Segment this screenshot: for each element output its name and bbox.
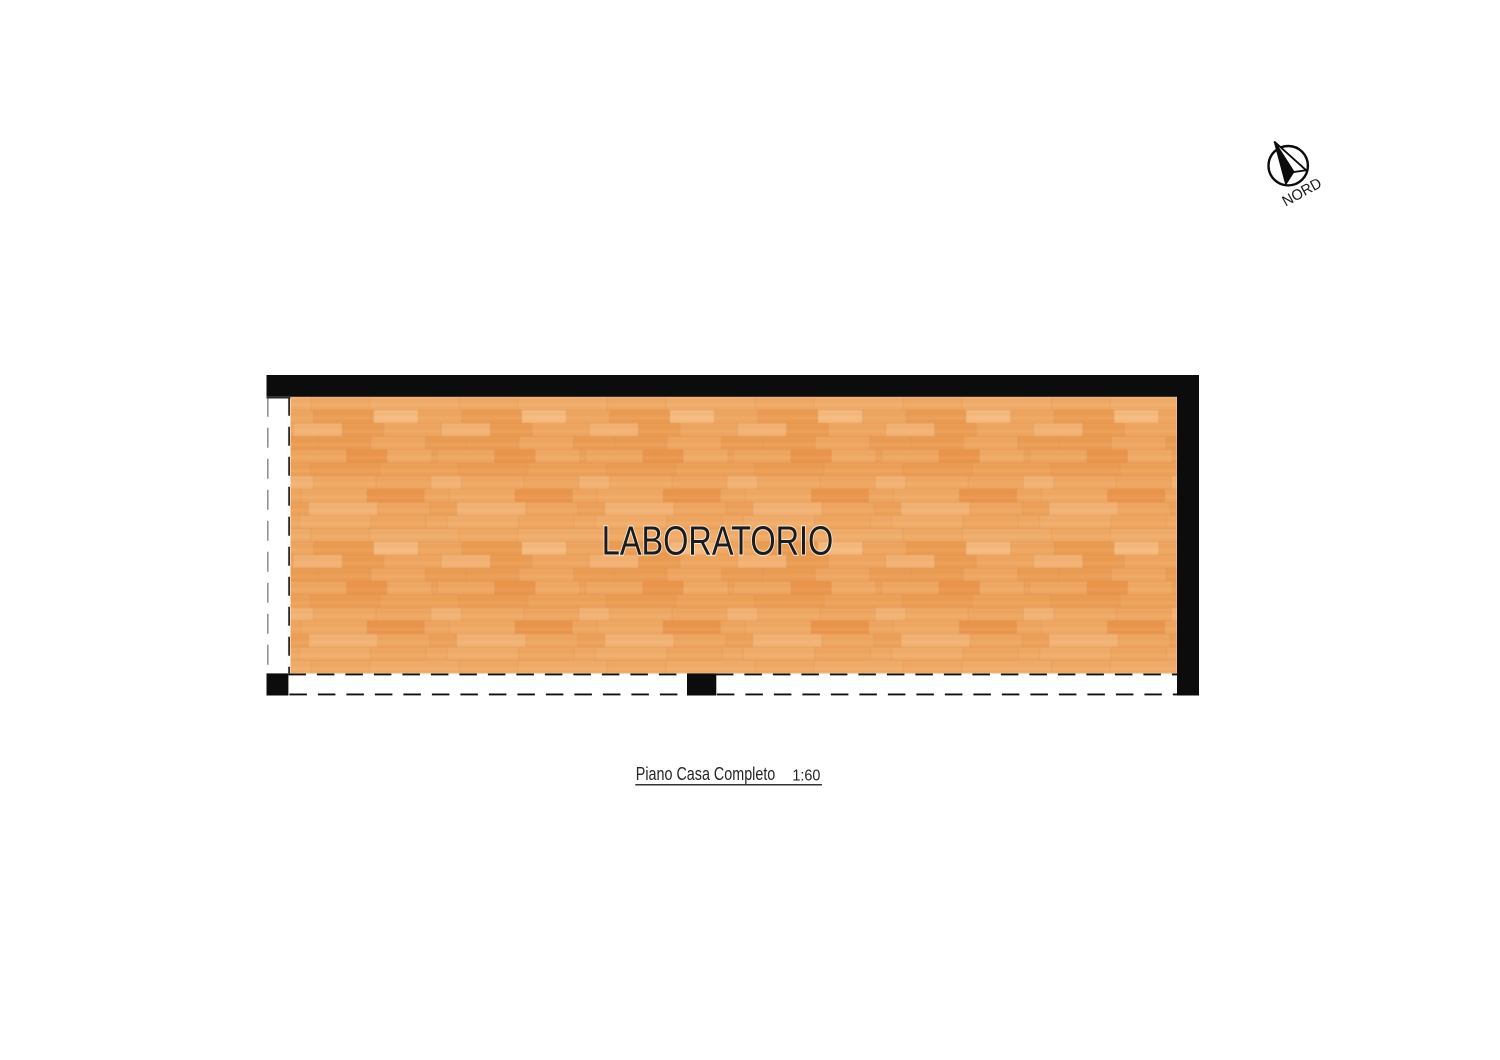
svg-text:1:60: 1:60 (792, 768, 820, 785)
svg-text:Piano Casa Completo: Piano Casa Completo (636, 764, 776, 784)
svg-text:LABORATORIO: LABORATORIO (602, 518, 834, 564)
